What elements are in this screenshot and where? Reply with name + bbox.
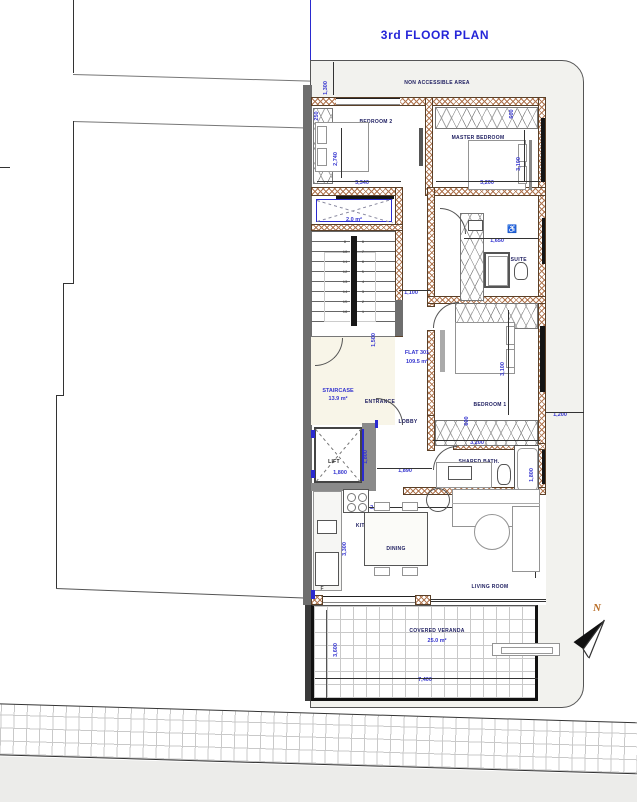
wardrobe xyxy=(435,107,538,129)
veranda-area-label: 25.0 m² xyxy=(428,638,447,644)
sofa-chaise xyxy=(512,506,540,572)
sofa-cushion-line xyxy=(452,503,540,504)
window xyxy=(542,218,545,264)
sink xyxy=(468,220,483,231)
wall-segment xyxy=(425,97,433,196)
wall-marker xyxy=(311,590,315,599)
dresser xyxy=(440,330,445,372)
stair-stringer xyxy=(350,236,357,326)
wall-segment xyxy=(311,187,397,196)
dim-line xyxy=(326,610,327,698)
coffee-table xyxy=(474,514,510,550)
shower xyxy=(484,252,510,288)
window xyxy=(540,326,545,392)
neighbor-outline xyxy=(56,395,57,588)
chair xyxy=(402,567,418,576)
dim-bedroom1-closet: 600 xyxy=(464,416,470,425)
wheelchair-icon: ♿ xyxy=(507,225,517,234)
glass-wall xyxy=(431,599,546,602)
staircase-label: STAIRCASE xyxy=(322,388,353,394)
dim-line xyxy=(524,130,525,182)
dim-line xyxy=(464,238,538,239)
flat-area-label: 109.5 m² xyxy=(406,359,428,365)
chair xyxy=(374,502,390,511)
bedroom1-label: BEDROOM 1 xyxy=(474,402,507,408)
wall-marker xyxy=(311,470,315,478)
chair xyxy=(374,567,390,576)
neighbor-outline xyxy=(73,121,311,129)
neighbor-outline xyxy=(56,395,64,396)
wardrobe xyxy=(435,420,538,446)
dim-line xyxy=(546,412,584,413)
fridge xyxy=(315,552,339,586)
wall-segment xyxy=(415,595,431,605)
dim-kitchen-h: 3,300 xyxy=(342,542,348,556)
veranda-label: COVERED VERANDA xyxy=(409,628,464,634)
bathtub xyxy=(514,445,539,492)
floor-plan-canvas: 3rd FLOOR PLAN NON ACCESSIBLE AREA 1,300… xyxy=(0,0,637,802)
dim-line xyxy=(315,678,538,679)
wall-marker xyxy=(311,430,315,438)
stove xyxy=(343,489,369,513)
non-accessible-area-label: NON ACCESSIBLE AREA xyxy=(404,80,470,86)
neighbor-outline xyxy=(73,74,311,82)
toilet xyxy=(497,464,511,485)
living-room-label: LIVING ROOM xyxy=(472,584,509,590)
pillow xyxy=(317,126,327,144)
window xyxy=(542,448,545,484)
window xyxy=(541,118,545,182)
dim-entrance-h: 1,500 xyxy=(371,333,377,347)
neighbor-outline xyxy=(73,0,74,73)
dim-lift-h: 1,800 xyxy=(363,450,369,464)
lobby-label: LOBBY xyxy=(399,419,418,425)
dim-master-h: 3,100 xyxy=(516,157,522,171)
wall-segment xyxy=(311,224,403,231)
neighbor-outline xyxy=(63,283,74,284)
dining-table xyxy=(364,512,428,566)
neighbor-outline xyxy=(0,167,10,168)
neighbor-outline xyxy=(56,588,304,599)
dim-line xyxy=(399,290,431,291)
lintel xyxy=(336,196,394,199)
pillow xyxy=(317,148,327,166)
door-swing xyxy=(426,488,450,512)
lift-label: LIFT xyxy=(328,459,340,465)
staircase-area-label: 13.9 m² xyxy=(329,396,348,402)
dim-bedroom2-h: 2,740 xyxy=(333,152,339,166)
wall-segment xyxy=(427,187,435,307)
wall-segment xyxy=(395,300,403,336)
stair-numbers-left: 9 10 11 12 13 14 15 16 xyxy=(340,238,350,318)
sliding-window xyxy=(323,596,415,603)
plot-edge-line xyxy=(310,0,311,60)
door-frame xyxy=(375,420,378,428)
dim-veranda-h: 3,600 xyxy=(333,643,339,657)
wall-segment xyxy=(427,330,435,422)
wall-segment xyxy=(427,415,435,451)
headboard xyxy=(529,140,532,190)
toilet xyxy=(514,262,528,280)
dim-line xyxy=(317,181,401,182)
dim-wall-top: 250 xyxy=(314,111,320,120)
dim-master-closet: 600 xyxy=(509,109,515,118)
stair-numbers-right: 8 7 6 5 4 3 2 1 xyxy=(359,238,367,318)
window xyxy=(336,98,400,105)
neighbor-outline xyxy=(63,283,64,395)
dim-bathtub-l: 1,800 xyxy=(529,468,535,482)
dim-bedroom1-h: 3,100 xyxy=(500,362,506,376)
shaft-area-label: 2.0 m² xyxy=(346,217,362,223)
dim-line xyxy=(436,181,540,182)
kitchen-sink xyxy=(317,520,337,534)
tv-unit xyxy=(419,128,423,166)
fridge-label: F xyxy=(320,586,323,592)
page-title: 3rd FLOOR PLAN xyxy=(381,28,489,42)
dim-lift-w: 1,800 xyxy=(333,470,347,476)
dim-line xyxy=(377,468,432,469)
dim-line xyxy=(508,310,509,415)
dim-line xyxy=(333,62,334,95)
bath-sink xyxy=(448,466,472,480)
chair xyxy=(402,502,418,511)
dim-setback-top: 1,300 xyxy=(323,81,329,95)
sun-lounger xyxy=(492,643,560,656)
dim-line xyxy=(341,128,342,178)
dining-label: DINING xyxy=(386,546,405,552)
dim-line xyxy=(433,440,540,441)
neighbor-outline xyxy=(73,121,74,283)
